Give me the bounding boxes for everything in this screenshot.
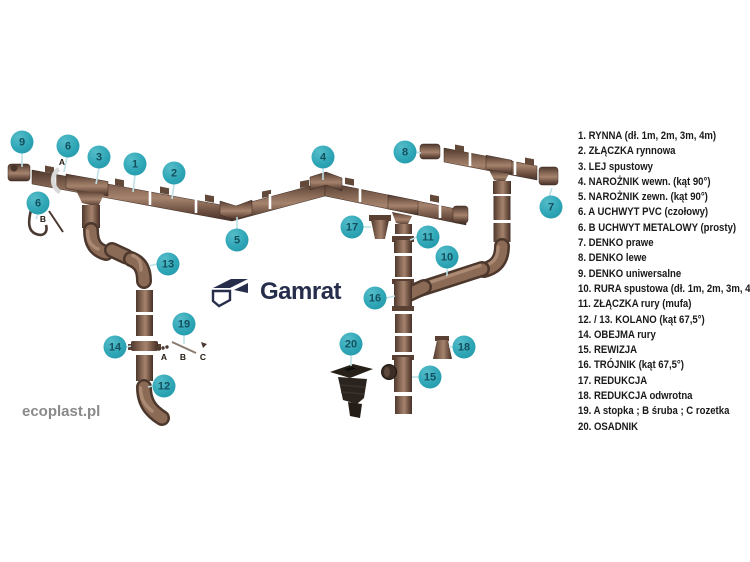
legend-item-10: 10. RURA spustowa (dł. 1m, 2m, 3m, 4m): [578, 282, 750, 297]
reduction-piece: [369, 215, 391, 239]
callout-13: 13: [157, 253, 180, 276]
callout-17: 17: [341, 216, 364, 239]
callout-7: 7: [540, 196, 563, 219]
callout-14: 14: [104, 336, 127, 359]
pipe-clamp: [128, 341, 161, 351]
legend-item-3: 3. LEJ spustowy: [578, 160, 750, 175]
downpipe-left: [88, 230, 163, 418]
end-cap-right-run: [453, 206, 468, 223]
callout-3: 3: [88, 146, 111, 169]
callout-10: 10: [436, 246, 459, 269]
gamrat-logo-icon: [211, 276, 253, 308]
pipe-coupler: [392, 236, 414, 253]
holder-a-label: A: [59, 157, 65, 167]
website-text: ecoplast.pl: [22, 403, 100, 420]
legend-item-16: 16. TRÓJNIK (kąt 67,5°): [578, 358, 750, 373]
legend-item-18: 18. REDUKCJA odwrotna: [578, 389, 750, 404]
gamrat-logo-text: Gamrat: [260, 278, 341, 306]
callout-8: 8: [394, 141, 417, 164]
legend-item-15: 15. REWIZJA: [578, 343, 750, 358]
legend-item-6a: 6. A UCHWYT PVC (czołowy): [578, 205, 750, 220]
legend-item-19: 19. A stopka ; B śruba ; C rozetka: [578, 404, 750, 419]
legend-item-5: 5. NAROŻNIK zewn. (kąt 90°): [578, 190, 750, 205]
accessory-b-label: B: [180, 352, 186, 362]
holder-b-label: B: [40, 214, 46, 224]
legend-item-20: 20. OSADNIK: [578, 420, 750, 435]
callout-2: 2: [163, 162, 186, 185]
legend-panel: 1. RYNNA (dł. 1m, 2m, 3m, 4m) 2. ZŁĄCZKA…: [578, 129, 750, 435]
callout-12: 12: [153, 375, 176, 398]
rosette: [201, 342, 207, 348]
gutter-outlet-left: [66, 174, 108, 228]
callout-15: 15: [419, 366, 442, 389]
callout-1: 1: [124, 153, 147, 176]
diagram-canvas: 9 6 3 1 2 6 13 5 4 17 8 7 11 10 16 20 18…: [0, 0, 750, 562]
callout-18: 18: [453, 336, 476, 359]
legend-item-6b: 6. B UCHWYT METALOWY (prosty): [578, 221, 750, 236]
gutter-outlet-right: [486, 155, 512, 194]
legend-item-7: 7. DENKO prawe: [578, 236, 750, 251]
callout-6a: 6: [57, 135, 80, 158]
legend-item-4: 4. NAROŻNIK wewn. (kąt 90°): [578, 175, 750, 190]
callout-20: 20: [340, 333, 363, 356]
end-cap-left: [420, 144, 440, 159]
legend-item-12-13: 12. / 13. KOLANO (kąt 67,5°): [578, 313, 750, 328]
legend-item-11: 11. ZŁĄCZKA rury (mufa): [578, 297, 750, 312]
legend-item-17: 17. REDUKCJA: [578, 374, 750, 389]
pipe-cleanout: [382, 355, 415, 392]
callout-9: 9: [11, 131, 34, 154]
pipe-tee: [392, 279, 424, 311]
accessory-a-label: A: [161, 352, 167, 362]
end-cap-right: [539, 167, 558, 185]
callout-5: 5: [226, 229, 249, 252]
sediment-trap: [330, 364, 373, 418]
callout-6b: 6: [27, 192, 50, 215]
legend-item-1: 1. RYNNA (dł. 1m, 2m, 3m, 4m): [578, 129, 750, 144]
downpipe-main: [382, 236, 425, 414]
callout-19: 19: [173, 313, 196, 336]
accessory-c-label: C: [200, 352, 206, 362]
legend-item-2: 2. ZŁĄCZKA rynnowa: [578, 144, 750, 159]
gamrat-logo: Gamrat: [211, 276, 341, 308]
legend-item-8: 8. DENKO lewe: [578, 251, 750, 266]
gutter-run-top-right: [420, 144, 558, 194]
callout-11: 11: [417, 226, 440, 249]
callout-4: 4: [312, 146, 335, 169]
callout-16: 16: [364, 287, 387, 310]
legend-item-9: 9. DENKO uniwersalne: [578, 267, 750, 282]
legend-item-14: 14. OBEJMA rury: [578, 328, 750, 343]
